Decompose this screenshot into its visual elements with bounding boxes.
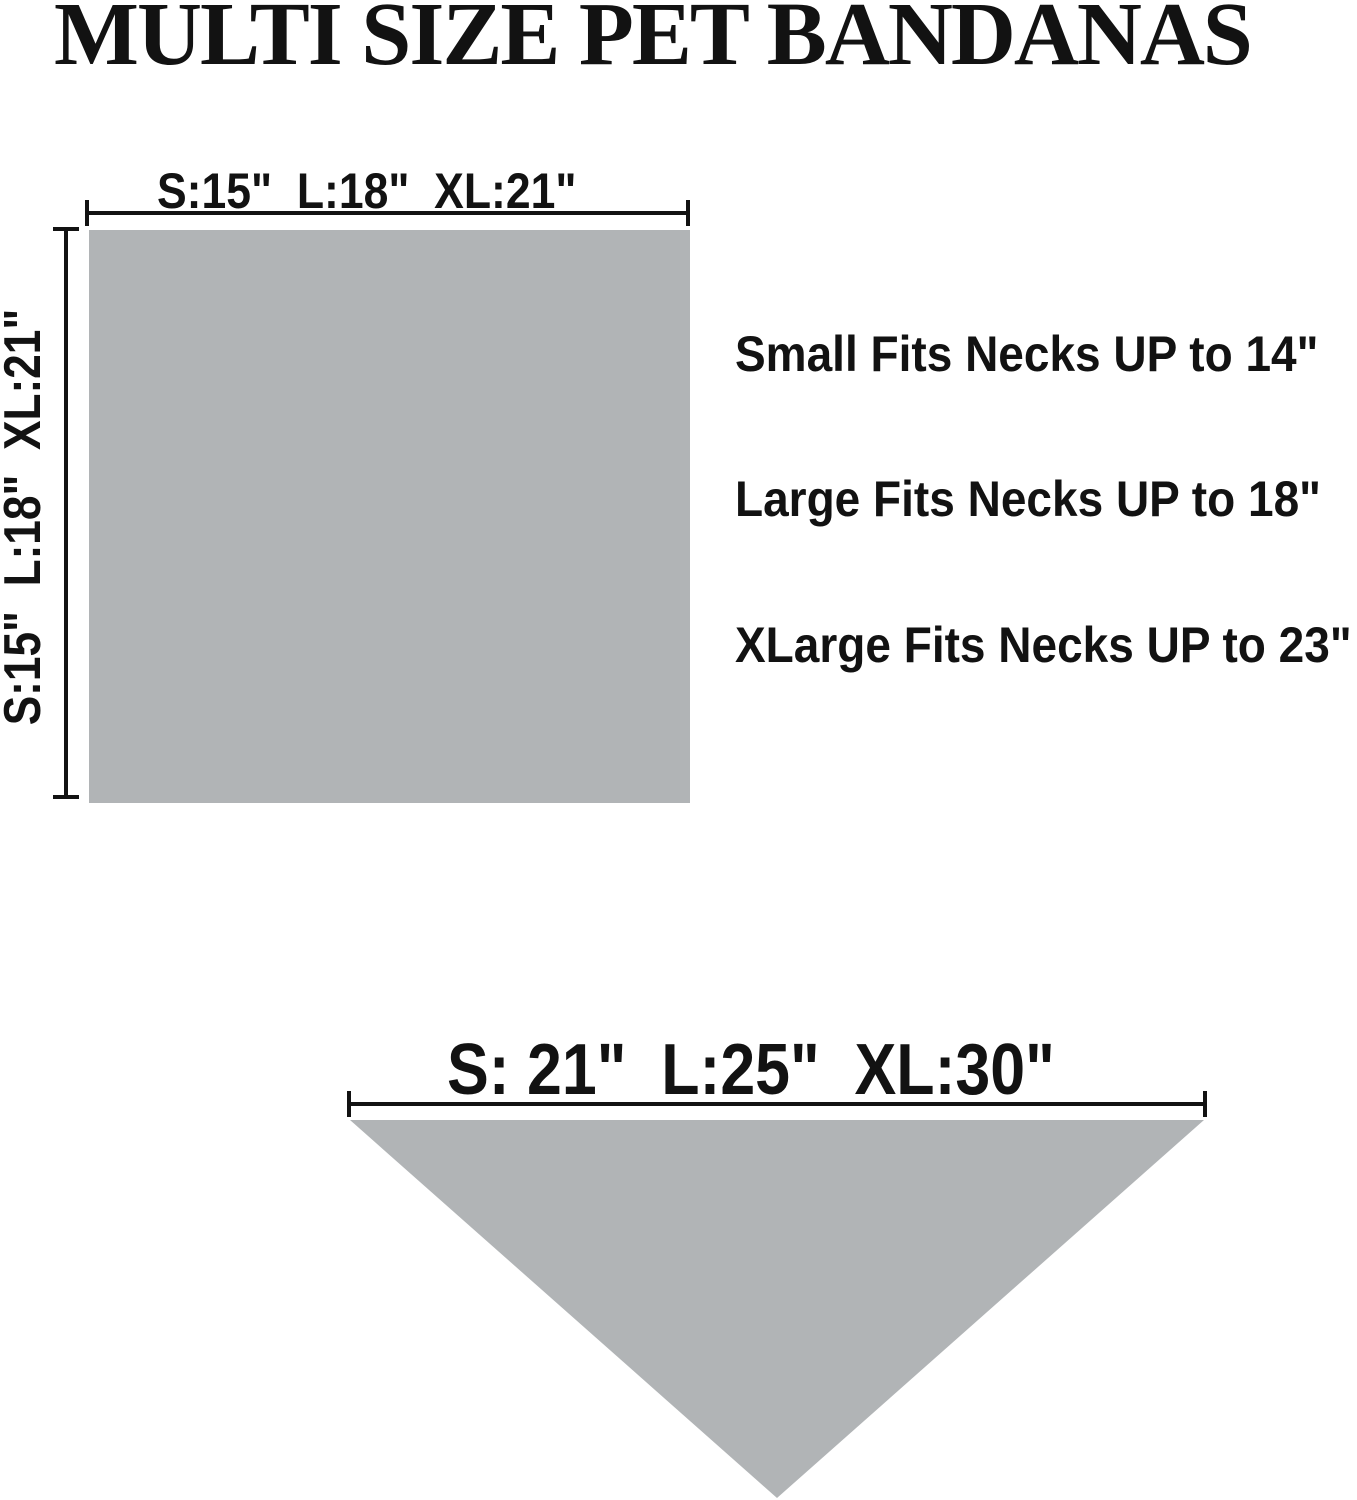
page-title: MULTI SIZE PET BANDANAS (54, 0, 1251, 80)
fit-note-large: Large Fits Necks UP to 18" (735, 474, 1321, 524)
fit-note-xlarge: XLarge Fits Necks UP to 23" (735, 620, 1352, 670)
measure-line (349, 1102, 1207, 1106)
fit-note-small: Small Fits Necks UP to 14" (735, 329, 1318, 379)
bandana-triangle-swatch (350, 1120, 1204, 1498)
measure-tick-bottom (53, 795, 79, 799)
triangle-width-label: S: 21" L:25" XL:30" (447, 1034, 1055, 1106)
measure-line (64, 229, 68, 797)
square-height-label-wrap: S:15" L:18" XL:21" (0, 230, 46, 803)
measure-tick-right (1203, 1091, 1207, 1117)
size-chart-infographic: MULTI SIZE PET BANDANAS S:15" L:18" XL:2… (0, 0, 1357, 1500)
square-height-label: S:15" L:18" XL:21" (0, 308, 49, 725)
measure-line (87, 211, 690, 215)
triangle-shape (350, 1120, 1204, 1498)
square-width-label: S:15" L:18" XL:21" (157, 166, 576, 216)
measure-tick-right (686, 200, 690, 226)
bandana-square-swatch (89, 230, 690, 803)
